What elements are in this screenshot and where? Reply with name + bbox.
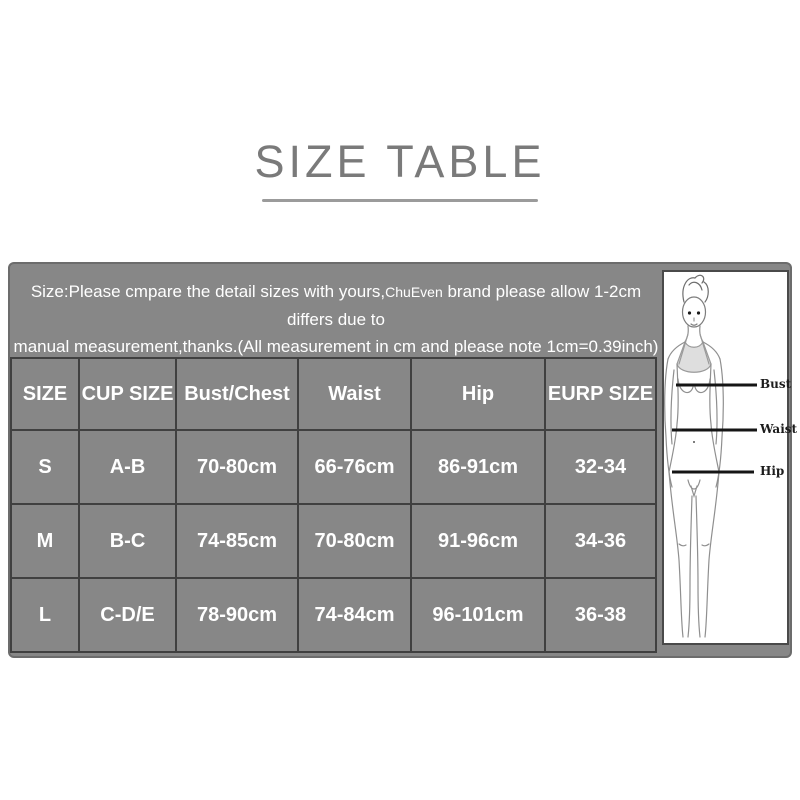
- header-cell-size: SIZE: [11, 358, 79, 430]
- cell-m-cup: B-C: [79, 504, 176, 578]
- cell-m-waist: 70-80cm: [298, 504, 411, 578]
- body-figure-illustration: [664, 272, 787, 643]
- cell-m-bust: 74-85cm: [176, 504, 298, 578]
- cell-l-size: L: [11, 578, 79, 652]
- header-cell-eurp-size: EURP SIZE: [545, 358, 656, 430]
- cell-l-cup: C-D/E: [79, 578, 176, 652]
- cell-s-cup: A-B: [79, 430, 176, 504]
- table-row-l: L C-D/E 78-90cm 74-84cm 96-101cm 36-38: [11, 578, 656, 652]
- measurement-label-hip: Hip: [760, 465, 790, 478]
- title-underline: [262, 199, 538, 202]
- figure-box: Bust Waist Hip: [662, 270, 789, 645]
- cell-m-size: M: [11, 504, 79, 578]
- header-cell-hip: Hip: [411, 358, 545, 430]
- cell-m-eurp: 34-36: [545, 504, 656, 578]
- page-title: SIZE TABLE: [0, 136, 800, 188]
- header-cell-bust: Bust/Chest: [176, 358, 298, 430]
- cell-s-bust: 70-80cm: [176, 430, 298, 504]
- header-cell-cup-size: CUP SIZE: [79, 358, 176, 430]
- cell-m-hip: 91-96cm: [411, 504, 545, 578]
- cell-s-hip: 86-91cm: [411, 430, 545, 504]
- size-note: Size:Please cmpare the detail sizes with…: [12, 278, 660, 360]
- cell-l-hip: 96-101cm: [411, 578, 545, 652]
- table-row-s: S A-B 70-80cm 66-76cm 86-91cm 32-34: [11, 430, 656, 504]
- cell-l-eurp: 36-38: [545, 578, 656, 652]
- table-header-row: SIZE CUP SIZE Bust/Chest Waist Hip EURP …: [11, 358, 656, 430]
- measurement-label-bust: Bust: [760, 378, 790, 391]
- brand-name: ChuEven: [385, 284, 443, 300]
- cell-s-size: S: [11, 430, 79, 504]
- size-note-line2: manual measurement,thanks.(All measureme…: [14, 337, 659, 356]
- size-chart-image: SIZE TABLE Size:Please cmpare the detail…: [0, 0, 800, 800]
- header-cell-waist: Waist: [298, 358, 411, 430]
- cell-s-eurp: 32-34: [545, 430, 656, 504]
- cell-s-waist: 66-76cm: [298, 430, 411, 504]
- cell-l-bust: 78-90cm: [176, 578, 298, 652]
- cell-l-waist: 74-84cm: [298, 578, 411, 652]
- size-table: SIZE CUP SIZE Bust/Chest Waist Hip EURP …: [10, 357, 657, 653]
- table-row-m: M B-C 74-85cm 70-80cm 91-96cm 34-36: [11, 504, 656, 578]
- size-panel: Size:Please cmpare the detail sizes with…: [8, 262, 792, 658]
- measurement-label-waist: Waist: [760, 423, 790, 436]
- size-note-line1-pre: Size:Please cmpare the detail sizes with…: [31, 282, 385, 301]
